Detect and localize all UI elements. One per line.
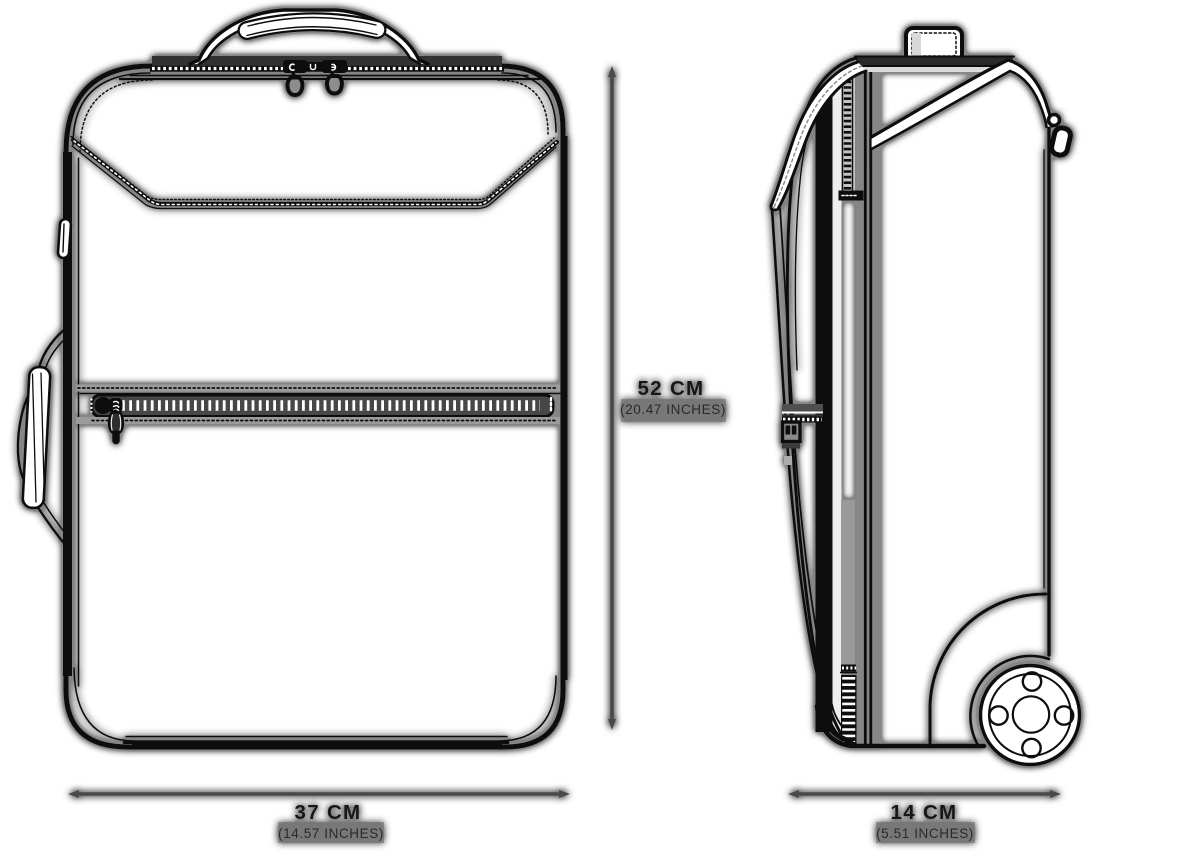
svg-text:(14.57 INCHES): (14.57 INCHES) bbox=[278, 826, 384, 841]
svg-text:52 CM: 52 CM bbox=[638, 377, 705, 400]
svg-text:(20.47 INCHES): (20.47 INCHES) bbox=[620, 402, 726, 417]
svg-text:37 CM: 37 CM bbox=[295, 801, 362, 824]
svg-text:(5.51 INCHES): (5.51 INCHES) bbox=[876, 826, 974, 841]
svg-text:14 CM: 14 CM bbox=[891, 801, 958, 824]
